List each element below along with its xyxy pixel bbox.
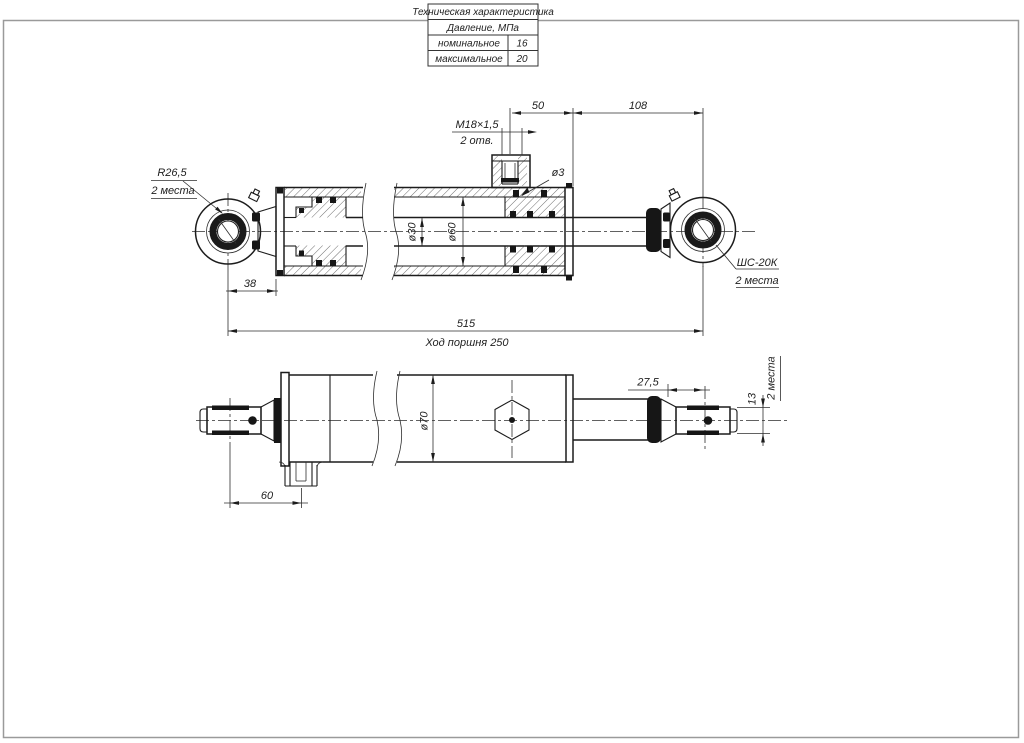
rod-collar [646,208,661,252]
bearing-text: ШС-20К [737,257,778,269]
thread-text: M18×1,5 [455,119,499,131]
dim-rod-dia: ø30 [407,218,424,246]
dim-13: 13 2 места [737,356,781,446]
spec-row-nominal-value: 16 [516,39,528,50]
dim-38: 38 [226,272,278,336]
rod-eye-left [196,188,262,272]
sheet-frame [4,21,1019,738]
bore-dia-text: ø60 [447,222,459,242]
stroke-text: Ход поршня 250 [424,337,509,349]
spec-table: Техническая характеристика Давление, МПа… [412,4,554,66]
dim-60-text: 60 [261,490,274,502]
drawing-sheet: Техническая характеристика Давление, МПа… [0,0,1024,743]
main-section-view: 50 108 M18×1,5 2 отв. ø3 R26,5 2 места [150,100,779,349]
orifice-text: ø3 [552,167,566,179]
label-bearing: ШС-20К 2 места [716,245,779,288]
engineering-drawing: Техническая характеристика Давление, МПа… [0,0,1024,743]
spec-table-group: Давление, МПа [446,23,519,34]
spec-row-max-value: 20 [515,54,528,65]
eye-side-right [661,386,737,450]
label-thread: M18×1,5 2 отв. [452,119,537,147]
bearing-note-text: 2 места [734,275,778,287]
dim-50-text: 50 [532,100,545,112]
port-boss [492,155,530,188]
rod-dia-text: ø30 [407,222,419,242]
rod-side [573,396,661,443]
dim-27-5-text: 27,5 [636,377,659,389]
hex-plug [495,380,529,458]
dim-60: 60 [224,448,308,508]
dim-50-108: 50 108 [502,100,703,196]
label-eye-radius: R26,5 2 места [150,167,223,214]
eye-width-text: 13 [747,392,759,405]
body-dia-text: ø70 [419,411,431,431]
side-view: ø70 27,5 13 2 места 60 [196,356,788,508]
spec-row-nominal-label: номинальное [438,39,500,50]
dim-515-text: 515 [457,318,476,330]
spec-table-title: Техническая характеристика [412,7,554,18]
dim-38-text: 38 [244,278,257,290]
spec-row-max-label: максимальное [435,54,503,65]
thread-note-text: 2 отв. [459,135,493,147]
eye-side-left [200,398,281,448]
dim-27-5: 27,5 [628,377,710,398]
eye-radius-text: R26,5 [157,167,187,179]
dim-108-text: 108 [629,100,648,112]
eye-width-note-text: 2 места [766,356,778,400]
eye-radius-note-text: 2 места [150,185,194,197]
dim-515: 515 Ход поршня 250 [228,266,703,349]
dim-70: ø70 [419,375,435,462]
